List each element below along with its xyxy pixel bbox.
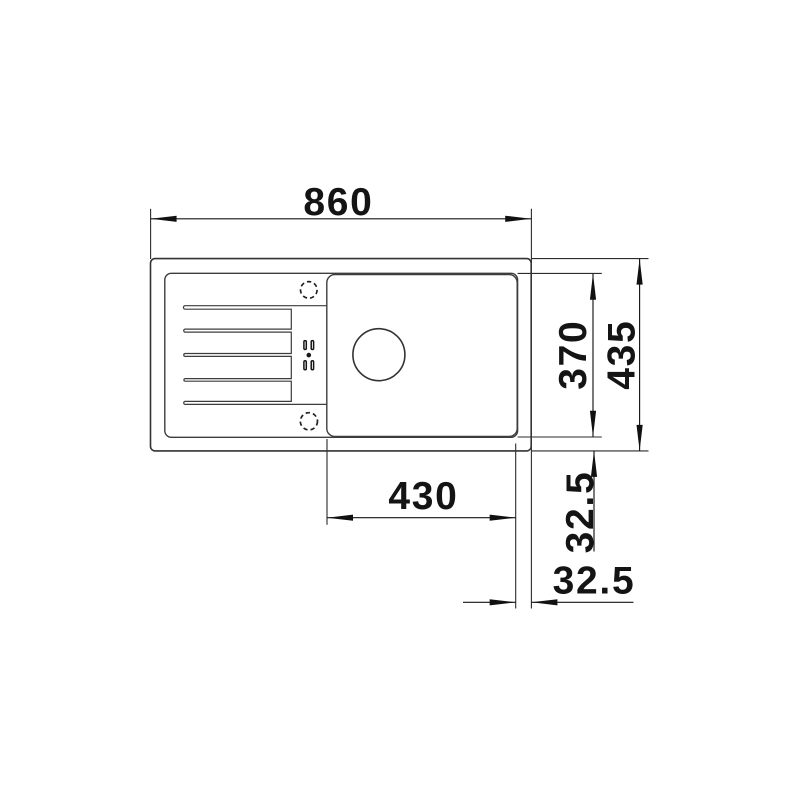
svg-text:435: 435: [600, 320, 643, 390]
svg-text:32.5: 32.5: [559, 471, 602, 554]
svg-text:32.5: 32.5: [553, 560, 636, 603]
svg-text:860: 860: [303, 181, 373, 224]
svg-text:370: 370: [552, 320, 595, 390]
svg-text:430: 430: [388, 475, 458, 518]
